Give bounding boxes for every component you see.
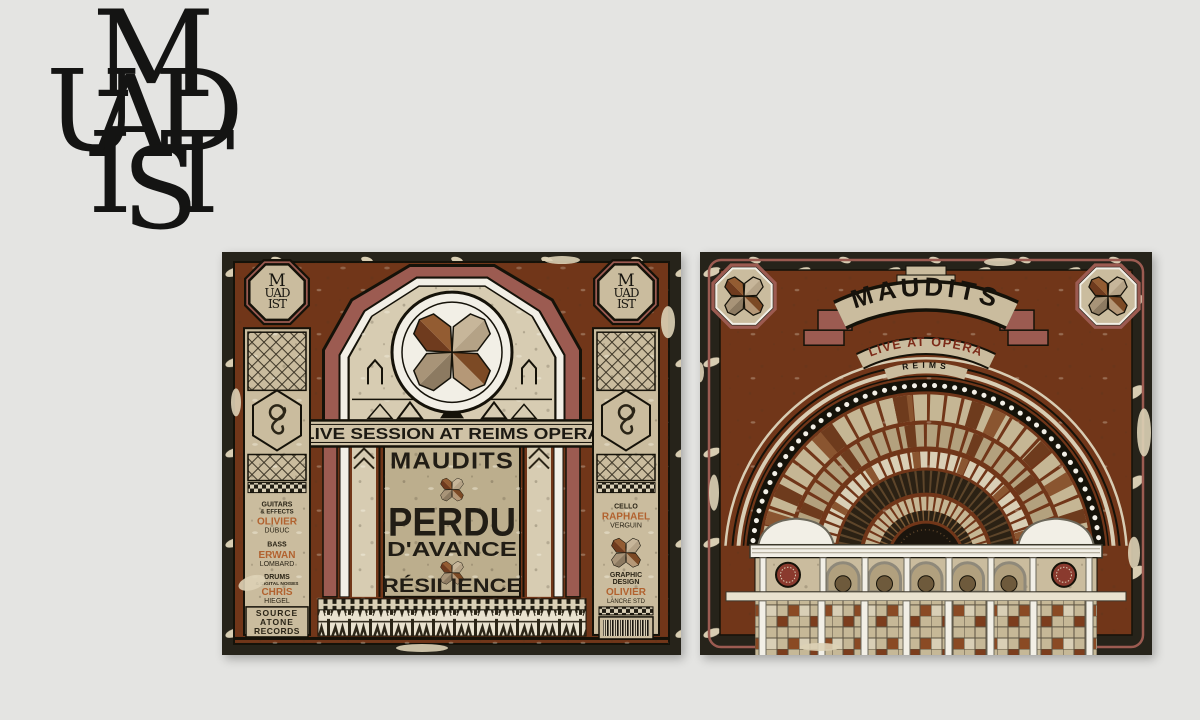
album-title-line2: D'AVANCE (387, 539, 517, 561)
svg-text:HIEGEL: HIEGEL (264, 598, 290, 605)
clover-emblem (392, 292, 512, 412)
svg-text:VERGUIN: VERGUIN (610, 523, 642, 530)
svg-text:GRAPHIC: GRAPHIC (610, 572, 642, 579)
svg-text:DUBUC: DUBUC (265, 528, 290, 535)
arch-window (332, 274, 572, 424)
logo-letter-t: T (160, 118, 235, 230)
svg-text:& EFFECTS: & EFFECTS (260, 510, 293, 516)
svg-text:CHRIS: CHRIS (261, 587, 292, 598)
svg-text:RAPHAEL: RAPHAEL (602, 512, 650, 523)
svg-text:LOMBARD: LOMBARD (260, 561, 295, 568)
svg-text:OLIVIER: OLIVIER (606, 587, 647, 598)
barcode (599, 617, 653, 639)
album-title-second: RÉSILIENCE (382, 575, 522, 597)
svg-text:BASS: BASS (267, 542, 287, 549)
svg-text:OLIVIER: OLIVIER (257, 517, 298, 528)
svg-text:GUITARS: GUITARS (262, 502, 293, 509)
banner: LIVE SESSION AT REIMS OPERA (292, 420, 612, 446)
svg-text:CELLO: CELLO (614, 504, 638, 511)
artist-logo: M U A D I S T (42, 12, 247, 242)
album-cover-left[interactable]: MAUDITS PERDU D'AVANCE RÉSILIENCE LIVE S… (222, 252, 681, 655)
page: M U A D I S T (0, 0, 1200, 720)
credit-design: GRAPHIC DESIGN OLIVIER LANCRE STD (606, 572, 647, 605)
svg-text:IST: IST (617, 297, 636, 311)
banner-text: LIVE SESSION AT REIMS OPERA (303, 426, 601, 443)
svg-text:IST: IST (268, 297, 287, 311)
left-cover-artist: MAUDITS (390, 448, 514, 474)
center-panel: MAUDITS PERDU D'AVANCE RÉSILIENCE (323, 446, 580, 596)
svg-text:RECORDS: RECORDS (254, 626, 300, 636)
album-cover-right[interactable]: MAUDITS LIVE AT OPERA REIMS (700, 252, 1152, 655)
svg-text:DESIGN: DESIGN (613, 579, 640, 586)
rosette (776, 563, 800, 587)
svg-text:DRUMS: DRUMS (264, 574, 290, 581)
rosette (1052, 563, 1076, 587)
label-source-atone: SOURCE ATONE RECORDS (246, 607, 308, 637)
svg-text:LANCRE STD: LANCRE STD (607, 599, 646, 605)
svg-text:ERWAN: ERWAN (258, 550, 295, 561)
